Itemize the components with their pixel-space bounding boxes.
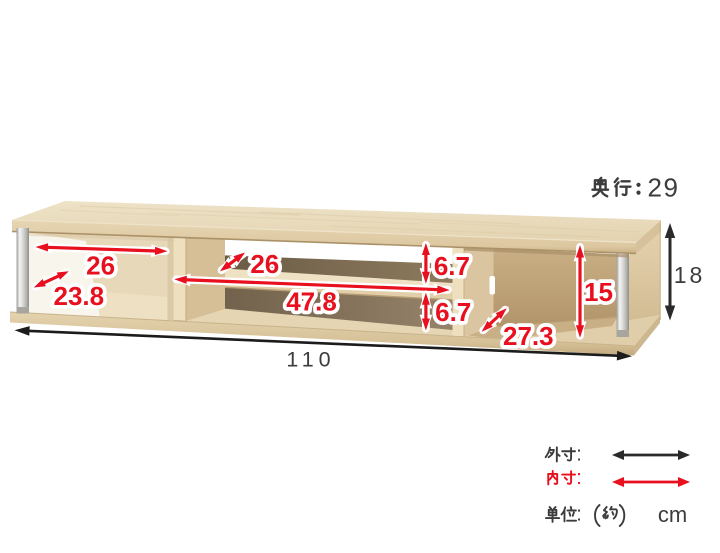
svg-text:26: 26 [86,251,115,281]
svg-text::: : [576,467,582,489]
svg-text:6.7: 6.7 [434,251,470,281]
svg-text:27.3: 27.3 [503,321,554,351]
svg-text:18: 18 [674,262,706,288]
svg-text:47.8: 47.8 [286,287,337,317]
svg-text:cm: cm [658,502,687,527]
svg-text::: : [576,504,582,526]
svg-text::: : [576,444,582,466]
svg-text:29: 29 [648,173,680,203]
svg-text:26: 26 [250,249,279,279]
svg-text:23.8: 23.8 [53,281,104,311]
svg-text:110: 110 [286,347,335,371]
svg-text:15: 15 [584,277,613,307]
svg-text:6.7: 6.7 [435,297,471,327]
